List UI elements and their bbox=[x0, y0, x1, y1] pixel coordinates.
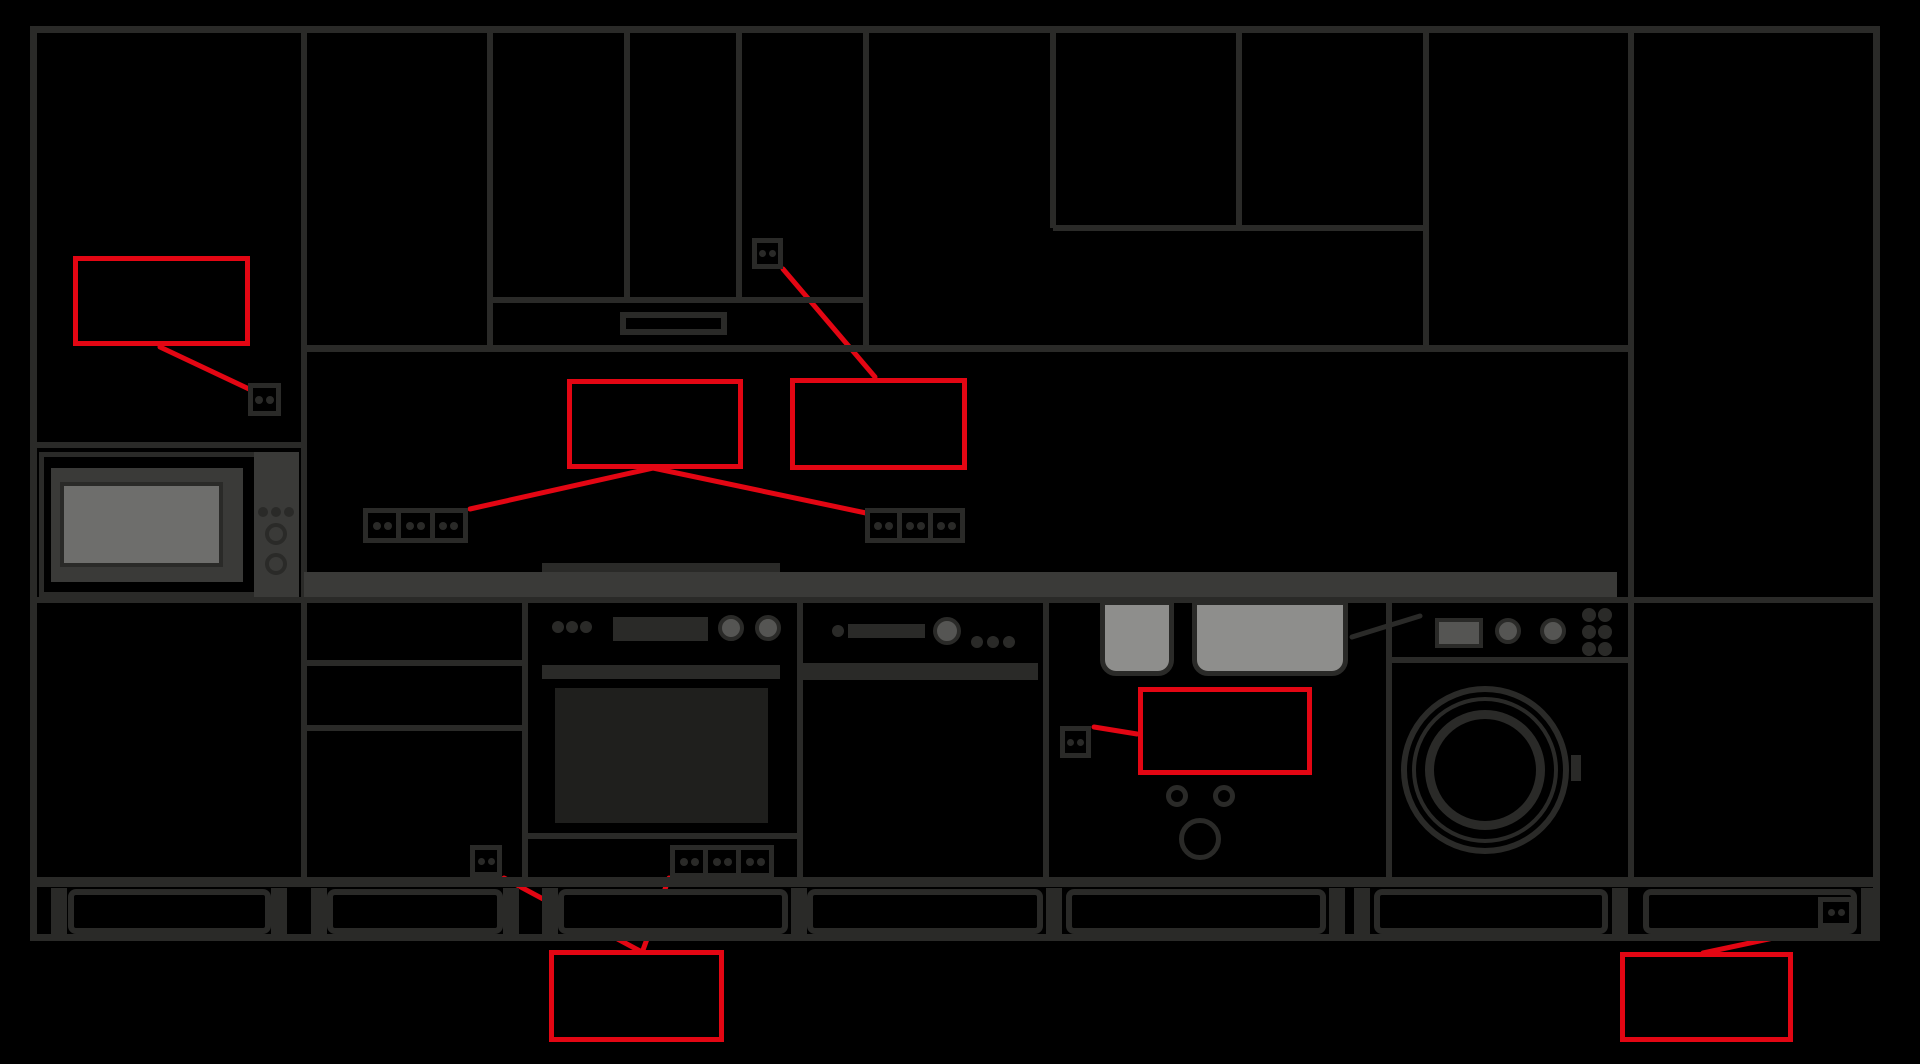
socket-pin-dot bbox=[266, 396, 274, 404]
microwave-shelf-line bbox=[30, 442, 307, 448]
socket-pin-dot bbox=[691, 858, 699, 866]
annotation-box-plinth-right bbox=[1620, 952, 1793, 1042]
socket-pin-dot bbox=[917, 522, 925, 530]
plinth-foot bbox=[1046, 888, 1062, 934]
socket-pin-dot bbox=[757, 858, 765, 866]
microwave-indicator-dot bbox=[258, 507, 268, 517]
microwave-window bbox=[60, 482, 223, 567]
sink-drain-circle bbox=[1179, 818, 1221, 860]
plinth-foot bbox=[791, 888, 807, 934]
tall-left-cabinet-divider bbox=[301, 26, 307, 877]
wall-left-line bbox=[30, 26, 37, 941]
socket-pin-dot bbox=[746, 858, 754, 866]
socket-pin-dot bbox=[1838, 909, 1845, 916]
floor-line bbox=[30, 934, 1880, 941]
socket-pin-dot bbox=[906, 522, 914, 530]
double-socket-icon bbox=[928, 508, 965, 543]
socket-pin-dot bbox=[948, 522, 956, 530]
annotation-box-base bbox=[549, 950, 724, 1042]
socket-pin-dot bbox=[769, 250, 776, 257]
double-socket-icon bbox=[430, 508, 468, 543]
dishwasher-indicator-dot bbox=[1003, 636, 1015, 648]
outlet-base-strip bbox=[670, 845, 774, 878]
oven-knob bbox=[755, 615, 781, 641]
socket-pin-dot bbox=[384, 522, 392, 530]
drawer-line-2 bbox=[307, 725, 522, 731]
upper-right-split-line bbox=[1053, 225, 1429, 231]
wallcab-door-divider-1 bbox=[624, 26, 630, 300]
dishwasher-indicator-dot bbox=[832, 625, 844, 637]
plinth-foot bbox=[503, 888, 519, 934]
wallcab-d-divider-1 bbox=[1050, 26, 1056, 228]
washer-display bbox=[1435, 618, 1483, 648]
socket-row bbox=[1060, 726, 1091, 758]
oven-knob bbox=[718, 615, 744, 641]
wallcab-door-divider-2 bbox=[736, 26, 742, 300]
washer-door-handle bbox=[1571, 755, 1581, 781]
outlet-plinth-right bbox=[1818, 897, 1854, 928]
dishwasher-indicator-dot bbox=[971, 636, 983, 648]
plinth-panel bbox=[68, 889, 271, 934]
sink-cabinet-knob bbox=[1166, 785, 1188, 807]
plinth-panel bbox=[807, 889, 1043, 934]
wall-right-line bbox=[1873, 26, 1880, 941]
sink-cabinet-knob bbox=[1213, 785, 1235, 807]
leader-tall-left bbox=[160, 347, 249, 389]
annotation-box-sink bbox=[1138, 687, 1312, 775]
outlet-backsplash-right bbox=[865, 508, 965, 543]
base-cabinets-bottom-line bbox=[30, 877, 1880, 887]
oven-indicator-dot bbox=[566, 621, 578, 633]
dishwasher-knob bbox=[933, 617, 961, 645]
leader-sink bbox=[1094, 727, 1137, 734]
socket-row bbox=[865, 508, 965, 543]
double-socket-icon bbox=[1818, 897, 1854, 928]
washer-knob bbox=[1540, 618, 1566, 644]
annotation-box-backsplash-right bbox=[790, 378, 967, 470]
dishwasher-right-wall bbox=[1043, 600, 1049, 877]
socket-pin-dot bbox=[439, 522, 447, 530]
outlet-backsplash-left bbox=[363, 508, 468, 543]
washer-button-dot bbox=[1582, 642, 1596, 656]
socket-pin-dot bbox=[417, 522, 425, 530]
socket-row bbox=[1818, 897, 1854, 928]
wallcab-d-divider-2 bbox=[1236, 26, 1242, 228]
hood-vent-slot bbox=[620, 312, 727, 335]
sink-right-wall bbox=[1386, 600, 1392, 877]
oven-indicator-dot bbox=[580, 621, 592, 633]
oven-bottom-line bbox=[528, 833, 797, 839]
double-socket-icon bbox=[736, 845, 774, 878]
kitchen-elevation-diagram bbox=[0, 0, 1920, 1064]
socket-row bbox=[363, 508, 468, 543]
socket-pin-dot bbox=[885, 522, 893, 530]
plinth-foot bbox=[1354, 888, 1370, 934]
socket-pin-dot bbox=[1077, 739, 1084, 746]
leader-wallcab-top bbox=[783, 269, 875, 377]
socket-pin-dot bbox=[724, 858, 732, 866]
socket-row bbox=[752, 238, 783, 269]
plinth-foot bbox=[1861, 888, 1873, 934]
wall-top-line bbox=[30, 26, 1880, 33]
plinth-foot bbox=[51, 888, 67, 934]
tall-right-cabinet-divider bbox=[1628, 26, 1634, 877]
annotation-box-tall-left bbox=[73, 256, 250, 346]
socket-pin-dot bbox=[488, 858, 495, 865]
socket-pin-dot bbox=[478, 858, 485, 865]
microwave-knob bbox=[265, 553, 287, 575]
oven-display bbox=[613, 617, 708, 641]
dishwasher-display-bar bbox=[848, 624, 925, 638]
dishwasher-top-band bbox=[800, 663, 1038, 680]
microwave-indicator-dot bbox=[271, 507, 281, 517]
plinth-foot bbox=[542, 888, 558, 934]
outlet-sink-cabinet bbox=[1060, 726, 1091, 758]
washer-panel-line bbox=[1392, 657, 1628, 663]
drawer-line-1 bbox=[307, 660, 522, 666]
oven-handle bbox=[542, 665, 780, 679]
double-socket-icon bbox=[752, 238, 783, 269]
plinth-panel bbox=[1374, 889, 1608, 934]
socket-pin-dot bbox=[373, 522, 381, 530]
leader-backsplash-right bbox=[653, 468, 866, 513]
annotation-box-backsplash-left bbox=[567, 379, 743, 469]
washer-button-dot bbox=[1582, 625, 1596, 639]
washer-knob bbox=[1495, 618, 1521, 644]
double-socket-icon bbox=[470, 845, 502, 877]
plinth-panel bbox=[327, 889, 503, 934]
plinth-foot bbox=[1329, 888, 1345, 934]
socket-pin-dot bbox=[1828, 909, 1835, 916]
socket-pin-dot bbox=[450, 522, 458, 530]
socket-pin-dot bbox=[1067, 739, 1074, 746]
countertop bbox=[304, 572, 1617, 597]
outlet-wallcab-top bbox=[752, 238, 783, 269]
socket-row bbox=[470, 845, 502, 877]
socket-pin-dot bbox=[406, 522, 414, 530]
plinth-panel bbox=[1066, 889, 1326, 934]
washer-button-dot bbox=[1598, 608, 1612, 622]
socket-pin-dot bbox=[937, 522, 945, 530]
washer-button-dot bbox=[1582, 608, 1596, 622]
washer-button-dot bbox=[1598, 642, 1612, 656]
wallcab-doors-bottom-line bbox=[490, 297, 869, 303]
dishwasher-indicator-dot bbox=[987, 636, 999, 648]
plinth-foot bbox=[271, 888, 287, 934]
socket-pin-dot bbox=[874, 522, 882, 530]
oven-indicator-dot bbox=[552, 621, 564, 633]
socket-row bbox=[248, 383, 281, 416]
oven-window bbox=[555, 688, 768, 823]
wall-units-bottom-line bbox=[304, 345, 1634, 352]
double-socket-icon bbox=[248, 383, 281, 416]
cooktop-strip bbox=[542, 563, 780, 572]
plinth-foot bbox=[1612, 888, 1628, 934]
microwave-indicator-dot bbox=[284, 507, 294, 517]
socket-pin-dot bbox=[713, 858, 721, 866]
washer-door-inner-ring bbox=[1425, 710, 1545, 830]
socket-row bbox=[670, 845, 774, 878]
wallcab-e-divider bbox=[1423, 26, 1429, 351]
counter-base-line bbox=[30, 597, 1880, 603]
microwave-knob bbox=[265, 523, 287, 545]
washer-button-dot bbox=[1598, 625, 1612, 639]
plinth-foot bbox=[311, 888, 327, 934]
sink-bowl-right bbox=[1192, 600, 1348, 676]
plinth-panel bbox=[558, 889, 788, 934]
outlet-base-single bbox=[470, 845, 502, 877]
leader-backsplash-left bbox=[470, 468, 653, 509]
socket-pin-dot bbox=[680, 858, 688, 866]
sink-bowl-left bbox=[1100, 600, 1174, 676]
socket-pin-dot bbox=[759, 250, 766, 257]
double-socket-icon bbox=[1060, 726, 1091, 758]
outlet-tall-left bbox=[248, 383, 281, 416]
oven-right-wall bbox=[797, 600, 803, 877]
socket-pin-dot bbox=[255, 396, 263, 404]
